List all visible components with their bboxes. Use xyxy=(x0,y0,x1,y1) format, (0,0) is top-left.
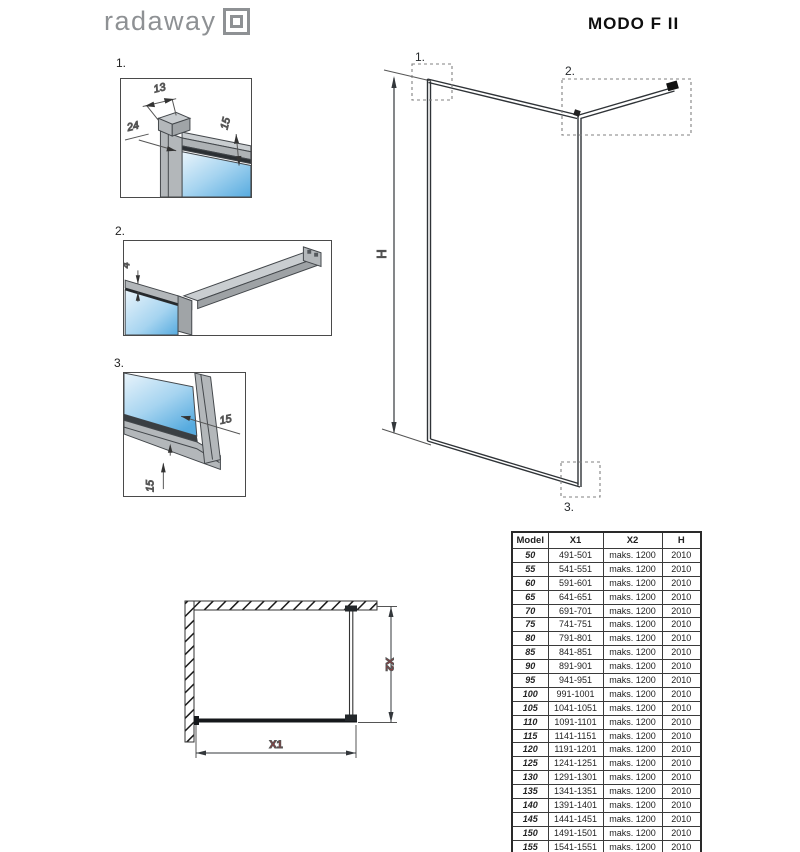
brand-name: radaway xyxy=(104,8,217,35)
cell-model: 155 xyxy=(512,840,548,852)
cell-x2: maks. 1200 xyxy=(603,618,662,632)
cell-h: 2010 xyxy=(662,590,701,604)
table-row: 90 891-901 maks. 1200 2010 xyxy=(512,660,701,674)
table-row: 130 1291-1301 maks. 1200 2010 xyxy=(512,771,701,785)
cell-x1: 1391-1401 xyxy=(548,799,603,813)
table-row: 105 1041-1051 maks. 1200 2010 xyxy=(512,701,701,715)
col-header-x1: X1 xyxy=(548,532,603,549)
callout-box-1 xyxy=(412,64,452,100)
cell-x1: 591-601 xyxy=(548,576,603,590)
table-row: 150 1491-1501 maks. 1200 2010 xyxy=(512,826,701,840)
cell-x1: 741-751 xyxy=(548,618,603,632)
col-header-x2: X2 xyxy=(603,532,662,549)
cell-x1: 1091-1101 xyxy=(548,715,603,729)
cell-h: 2010 xyxy=(662,743,701,757)
table-row: 75 741-751 maks. 1200 2010 xyxy=(512,618,701,632)
cell-x1: 1241-1251 xyxy=(548,757,603,771)
cell-h: 2010 xyxy=(662,604,701,618)
cell-h: 2010 xyxy=(662,729,701,743)
cell-model: 105 xyxy=(512,701,548,715)
cell-model: 55 xyxy=(512,562,548,576)
cell-h: 2010 xyxy=(662,687,701,701)
table-row: 80 791-801 maks. 1200 2010 xyxy=(512,632,701,646)
wall-bracket xyxy=(666,81,679,92)
cell-x1: 691-701 xyxy=(548,604,603,618)
height-dimension: H xyxy=(374,70,431,445)
detail-3-label: 3. xyxy=(114,356,124,370)
cell-model: 125 xyxy=(512,757,548,771)
cell-x2: maks. 1200 xyxy=(603,799,662,813)
table-row: 145 1441-1451 maks. 1200 2010 xyxy=(512,812,701,826)
cell-x2: maks. 1200 xyxy=(603,660,662,674)
brand-logo: radaway xyxy=(104,8,250,35)
cell-x2: maks. 1200 xyxy=(603,785,662,799)
cell-model: 130 xyxy=(512,771,548,785)
x2-label: X2 xyxy=(383,658,395,671)
x2-dimension: X2 xyxy=(358,607,397,723)
height-label: H xyxy=(374,249,389,258)
size-table: Model X1 X2 H 50 491-501 maks. 1200 2010… xyxy=(511,531,702,852)
cell-h: 2010 xyxy=(662,576,701,590)
cell-h: 2010 xyxy=(662,785,701,799)
cell-x1: 1041-1051 xyxy=(548,701,603,715)
cell-model: 120 xyxy=(512,743,548,757)
col-header-h: H xyxy=(662,532,701,549)
detail-3-drawing: 15 15 xyxy=(123,372,246,497)
callout-1-label: 1. xyxy=(415,50,425,64)
support-bar-plan xyxy=(345,606,357,722)
cell-model: 90 xyxy=(512,660,548,674)
cell-h: 2010 xyxy=(662,771,701,785)
svg-text:13: 13 xyxy=(152,81,167,96)
cell-x1: 541-551 xyxy=(548,562,603,576)
cell-x2: maks. 1200 xyxy=(603,729,662,743)
cell-model: 70 xyxy=(512,604,548,618)
cell-h: 2010 xyxy=(662,632,701,646)
cell-h: 2010 xyxy=(662,840,701,852)
cell-h: 2010 xyxy=(662,646,701,660)
cell-model: 75 xyxy=(512,618,548,632)
cell-x1: 1341-1351 xyxy=(548,785,603,799)
cell-model: 145 xyxy=(512,812,548,826)
arm-joint xyxy=(573,109,581,117)
cell-h: 2010 xyxy=(662,715,701,729)
detail-1-label: 1. xyxy=(116,56,126,70)
cell-model: 65 xyxy=(512,590,548,604)
table-row: 110 1091-1101 maks. 1200 2010 xyxy=(512,715,701,729)
cell-x1: 841-851 xyxy=(548,646,603,660)
table-row: 95 941-951 maks. 1200 2010 xyxy=(512,674,701,688)
table-row: 60 591-601 maks. 1200 2010 xyxy=(512,576,701,590)
cell-model: 50 xyxy=(512,549,548,563)
svg-text:24: 24 xyxy=(125,119,141,134)
cell-h: 2010 xyxy=(662,674,701,688)
table-row: 85 841-851 maks. 1200 2010 xyxy=(512,646,701,660)
cell-x2: maks. 1200 xyxy=(603,771,662,785)
cell-x1: 641-651 xyxy=(548,590,603,604)
support-arm xyxy=(573,81,679,119)
cell-x2: maks. 1200 xyxy=(603,840,662,852)
detail-2-label: 2. xyxy=(115,224,125,238)
table-row: 140 1391-1401 maks. 1200 2010 xyxy=(512,799,701,813)
detail-1-drawing: 13 24 15 xyxy=(120,78,252,198)
cell-model: 85 xyxy=(512,646,548,660)
cell-model: 95 xyxy=(512,674,548,688)
cell-x1: 991-1001 xyxy=(548,687,603,701)
callout-boxes xyxy=(412,64,691,497)
cell-x2: maks. 1200 xyxy=(603,674,662,688)
cell-x2: maks. 1200 xyxy=(603,632,662,646)
cell-x2: maks. 1200 xyxy=(603,549,662,563)
cell-x2: maks. 1200 xyxy=(603,562,662,576)
cell-x2: maks. 1200 xyxy=(603,590,662,604)
cell-x2: maks. 1200 xyxy=(603,604,662,618)
table-row: 65 641-651 maks. 1200 2010 xyxy=(512,590,701,604)
cell-h: 2010 xyxy=(662,562,701,576)
svg-text:15: 15 xyxy=(219,115,234,131)
svg-text:4: 4 xyxy=(123,262,132,268)
svg-text:15: 15 xyxy=(145,479,157,492)
cell-x1: 1441-1451 xyxy=(548,812,603,826)
callout-3-label: 3. xyxy=(564,500,574,514)
svg-text:15: 15 xyxy=(219,413,234,427)
dimension-15-bottom: 15 xyxy=(145,444,173,492)
cell-x1: 491-501 xyxy=(548,549,603,563)
cell-model: 140 xyxy=(512,799,548,813)
elevation-drawing: H 1. 2. 3. xyxy=(370,48,710,518)
col-header-model: Model xyxy=(512,532,548,549)
cell-h: 2010 xyxy=(662,799,701,813)
detail-2-drawing: 4 xyxy=(123,240,332,336)
cell-h: 2010 xyxy=(662,701,701,715)
cell-x2: maks. 1200 xyxy=(603,757,662,771)
table-row: 115 1141-1151 maks. 1200 2010 xyxy=(512,729,701,743)
cell-x1: 1541-1551 xyxy=(548,840,603,852)
cell-model: 60 xyxy=(512,576,548,590)
cell-x2: maks. 1200 xyxy=(603,826,662,840)
x1-dimension: X1 xyxy=(196,725,356,758)
table-row: 120 1191-1201 maks. 1200 2010 xyxy=(512,743,701,757)
cell-x2: maks. 1200 xyxy=(603,687,662,701)
table-row: 135 1341-1351 maks. 1200 2010 xyxy=(512,785,701,799)
plan-drawing: X2 X1 xyxy=(180,595,405,770)
glass-panel-plan xyxy=(194,716,357,725)
table-row: 55 541-551 maks. 1200 2010 xyxy=(512,562,701,576)
cell-h: 2010 xyxy=(662,826,701,840)
datasheet-page: radaway MODO F II 1. xyxy=(0,0,800,852)
brand-square-icon xyxy=(223,8,250,35)
cell-x1: 941-951 xyxy=(548,674,603,688)
cell-model: 110 xyxy=(512,715,548,729)
cell-model: 135 xyxy=(512,785,548,799)
cell-x1: 1491-1501 xyxy=(548,826,603,840)
support-arm xyxy=(184,247,321,309)
table-row: 70 691-701 maks. 1200 2010 xyxy=(512,604,701,618)
cell-x1: 791-801 xyxy=(548,632,603,646)
table-row: 155 1541-1551 maks. 1200 2010 xyxy=(512,840,701,852)
callout-2-label: 2. xyxy=(565,64,575,78)
cell-model: 80 xyxy=(512,632,548,646)
cell-h: 2010 xyxy=(662,757,701,771)
left-wall xyxy=(185,601,194,742)
cell-x1: 1291-1301 xyxy=(548,771,603,785)
table-row: 125 1241-1251 maks. 1200 2010 xyxy=(512,757,701,771)
cell-x1: 1191-1201 xyxy=(548,743,603,757)
cell-x2: maks. 1200 xyxy=(603,576,662,590)
cell-x2: maks. 1200 xyxy=(603,812,662,826)
table-header-row: Model X1 X2 H xyxy=(512,532,701,549)
cell-x2: maks. 1200 xyxy=(603,715,662,729)
cell-h: 2010 xyxy=(662,549,701,563)
table-row: 50 491-501 maks. 1200 2010 xyxy=(512,549,701,563)
glass-panel-outline xyxy=(428,79,582,487)
cell-x2: maks. 1200 xyxy=(603,743,662,757)
cell-h: 2010 xyxy=(662,812,701,826)
cell-model: 115 xyxy=(512,729,548,743)
table-body: 50 491-501 maks. 1200 2010 55 541-551 ma… xyxy=(512,549,701,852)
page-title: MODO F II xyxy=(588,14,679,34)
cell-x2: maks. 1200 xyxy=(603,701,662,715)
x1-label: X1 xyxy=(269,739,282,751)
cell-h: 2010 xyxy=(662,618,701,632)
cell-model: 100 xyxy=(512,687,548,701)
cell-x2: maks. 1200 xyxy=(603,646,662,660)
cell-x1: 1141-1151 xyxy=(548,729,603,743)
cell-h: 2010 xyxy=(662,660,701,674)
table-row: 100 991-1001 maks. 1200 2010 xyxy=(512,687,701,701)
cell-x1: 891-901 xyxy=(548,660,603,674)
cell-model: 150 xyxy=(512,826,548,840)
